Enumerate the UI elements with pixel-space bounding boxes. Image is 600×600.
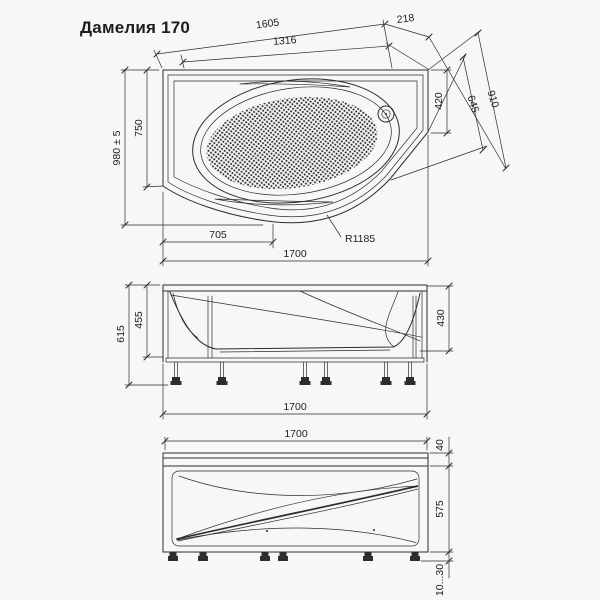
drain-center [385, 113, 387, 115]
dim-1316: 1316 [273, 34, 297, 48]
panel-swoosh-main [177, 486, 418, 539]
antislip-texture [201, 86, 384, 199]
rim-detail-top [240, 81, 350, 87]
drawing-title: Дамелия 170 [80, 18, 190, 37]
panel-swoosh-echo [178, 489, 418, 541]
panel-dot-2 [373, 529, 375, 531]
dim-40: 40 [434, 439, 446, 451]
side-box [163, 285, 427, 362]
dim-455: 455 [133, 311, 145, 329]
dim-910: 910 [485, 89, 502, 109]
radius-leader [327, 215, 341, 237]
side-view: 615 455 430 1700 [115, 282, 453, 419]
dim-r1185: R1185 [345, 233, 375, 245]
dim-420: 420 [433, 92, 445, 110]
dim-1605: 1605 [255, 17, 280, 32]
dim-1700-top: 1700 [283, 248, 307, 260]
side-extension-lines [125, 285, 453, 419]
dim-575: 575 [434, 500, 446, 518]
dim-980: 980 ± 5 [111, 130, 123, 165]
panel-feet [168, 552, 420, 561]
panel-wave-top [179, 476, 417, 496]
dim-10-30: 10...30 [434, 564, 446, 596]
tub-profile-inner [220, 350, 390, 352]
panel-dot-1 [266, 530, 268, 532]
tub-sweep-lines [171, 291, 421, 347]
side-dimension-ticks [126, 282, 452, 417]
dim-1700-side: 1700 [283, 401, 307, 413]
front-extension-lines [165, 437, 453, 561]
dim-218: 218 [396, 12, 415, 26]
side-dimension-lines [129, 285, 449, 414]
frame-legs [175, 362, 412, 377]
dim-705: 705 [209, 229, 227, 241]
top-view: 1605 1316 218 980 ± 5 750 420 645 910 70… [111, 12, 509, 266]
panel-decor [177, 476, 418, 543]
panel-box [163, 453, 428, 552]
dim-645: 645 [465, 94, 482, 114]
tub-profile [170, 292, 420, 349]
frame-rail [166, 358, 424, 362]
front-view: 1700 40 575 10...30 [162, 428, 453, 596]
dim-1700-front: 1700 [284, 428, 308, 440]
dim-430: 430 [435, 309, 447, 327]
technical-drawing: Дамелия 170 1605 1316 218 980 ± 5 750 42… [0, 0, 600, 600]
dim-750: 750 [133, 119, 145, 137]
dim-615: 615 [115, 325, 127, 343]
frame-feet [171, 377, 416, 385]
